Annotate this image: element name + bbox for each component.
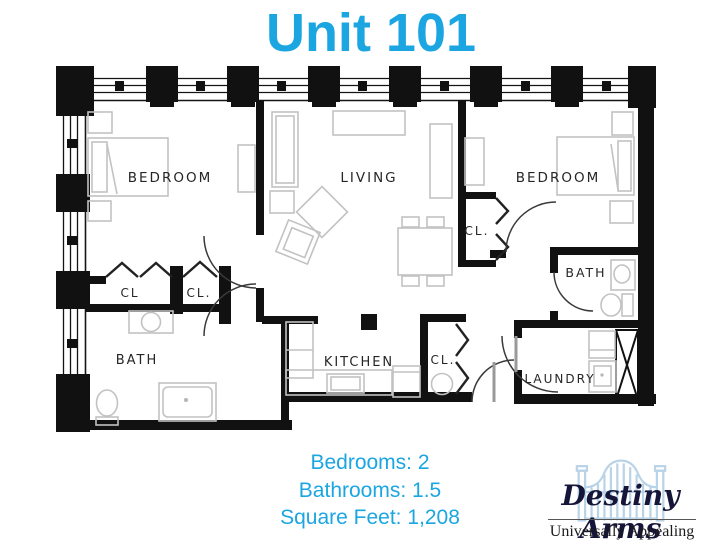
label-bedroom-right: BEDROOM bbox=[516, 170, 600, 186]
bath-main-fixtures bbox=[96, 311, 216, 425]
logo-tagline: Universally Appealing bbox=[548, 519, 696, 541]
label-closet-1: CL bbox=[120, 286, 139, 300]
bedroom-right-door-arc bbox=[506, 202, 556, 252]
bedrooms-line: Bedrooms: 2 bbox=[220, 449, 520, 477]
shaft-x bbox=[616, 330, 638, 400]
label-kitchen: KITCHEN bbox=[324, 355, 394, 370]
bed-right bbox=[465, 112, 634, 223]
label-bath-half: BATH bbox=[565, 265, 606, 280]
water-heater bbox=[432, 374, 453, 395]
label-living: LIVING bbox=[340, 170, 397, 186]
bathrooms-line: Bathrooms: 1.5 bbox=[220, 477, 520, 505]
unit-details: Bedrooms: 2 Bathrooms: 1.5 Square Feet: … bbox=[220, 449, 520, 532]
sqft-line: Square Feet: 1,208 bbox=[220, 504, 520, 532]
label-laundry: LAUNDRY bbox=[524, 372, 595, 386]
living-furniture bbox=[270, 111, 452, 286]
bed-left bbox=[88, 112, 255, 221]
label-bedroom-left: BEDROOM bbox=[128, 170, 212, 186]
label-bath-main: BATH bbox=[116, 353, 159, 368]
label-closet-kitchen: CL. bbox=[431, 353, 456, 367]
label-closet-mid: CL. bbox=[465, 224, 490, 238]
destiny-arms-logo: Destiny Arms Universally Appealing bbox=[520, 445, 707, 544]
label-closet-2: CL. bbox=[187, 286, 212, 300]
flyer-page: Unit 101 bbox=[0, 0, 707, 544]
